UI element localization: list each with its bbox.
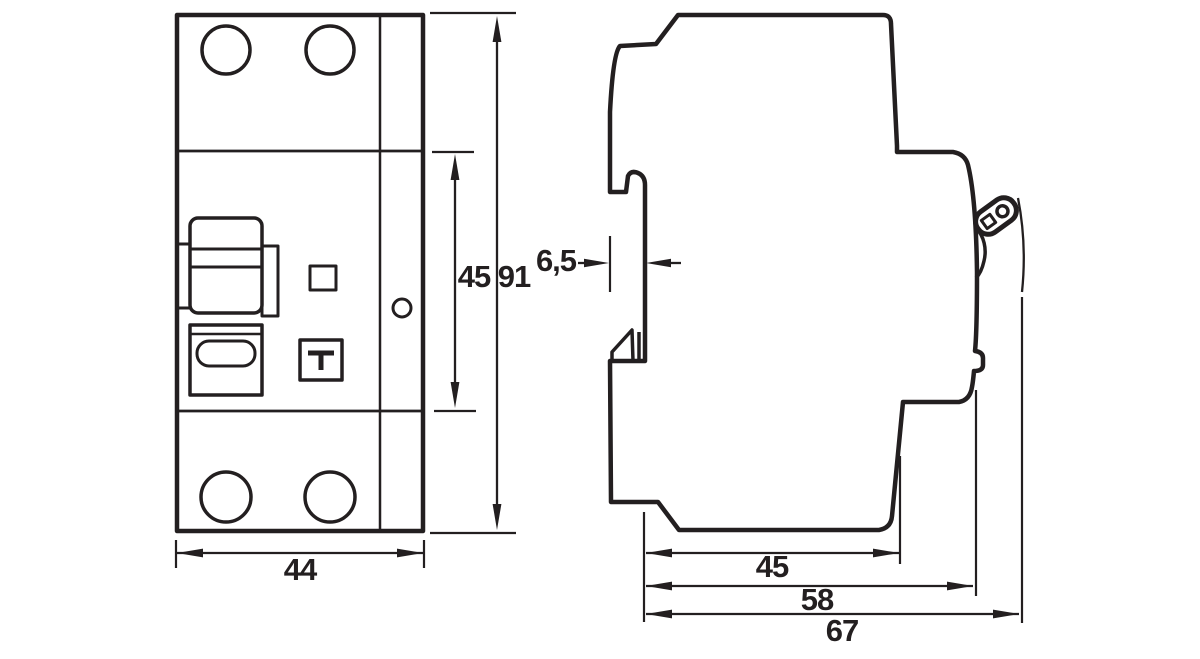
arrow-up-icon [493, 16, 502, 42]
dimension-label: 45 [756, 549, 789, 584]
arrow-up-icon [451, 154, 460, 180]
arrow-right-icon [584, 259, 609, 267]
dimension-label: 67 [826, 613, 858, 648]
dimension-recess-6-5: 6,5 [536, 236, 681, 292]
top-terminal-screw-left [202, 26, 250, 74]
lever-tip-hole [995, 204, 1010, 219]
toggle-switch [177, 218, 278, 316]
front-view [177, 15, 423, 531]
side-view [610, 15, 1024, 530]
dimension-width-44: 44 [176, 540, 424, 587]
test-button [300, 340, 342, 380]
circuit-breaker-dimension-diagram: 44 45 91 [0, 0, 1200, 659]
lever-swing-arc [1018, 198, 1024, 292]
label-window-frame [190, 325, 262, 395]
front-view-body-outline [177, 15, 423, 531]
arrow-left-icon [646, 582, 672, 591]
arrow-right-icon [947, 582, 973, 591]
dimension-depth-67: 67 [646, 610, 1019, 648]
bottom-terminal-screw-right [305, 472, 355, 522]
dimension-label: 6,5 [536, 243, 577, 278]
arrow-left-icon [177, 549, 203, 558]
din-rail-release-clip [612, 330, 633, 361]
dimension-label: 45 [458, 259, 491, 294]
bottom-terminal-screw-left [201, 472, 251, 522]
toggle-switch-right-tab [262, 246, 278, 316]
arrow-right-icon [993, 610, 1019, 619]
flange-indicator-hole [393, 299, 411, 317]
label-window [190, 325, 262, 395]
dimension-depth-58: 58 [646, 582, 973, 617]
label-window-pill [197, 341, 255, 366]
dimension-depth-45: 45 [646, 549, 899, 584]
status-indicator-window [310, 266, 336, 290]
top-terminal-screw-right [306, 26, 354, 74]
arrow-down-icon [493, 504, 502, 530]
arrow-down-icon [451, 382, 460, 408]
arrow-right-icon [873, 549, 899, 558]
side-view-profile-outline [610, 15, 983, 530]
arrow-right-icon [397, 549, 423, 558]
dimension-height-45: 45 [451, 154, 491, 408]
lever-base-hole [981, 214, 995, 228]
dimension-label: 91 [498, 259, 531, 294]
dimension-label: 44 [284, 552, 318, 587]
dimension-height-91: 91 [493, 16, 531, 530]
dimension-label: 58 [801, 582, 834, 617]
arrow-left-icon [646, 259, 671, 267]
arrow-left-icon [646, 610, 672, 619]
test-button-t-icon [308, 353, 334, 370]
dimension-drawing: 44 45 91 [0, 0, 1200, 659]
arrow-left-icon [646, 549, 672, 558]
